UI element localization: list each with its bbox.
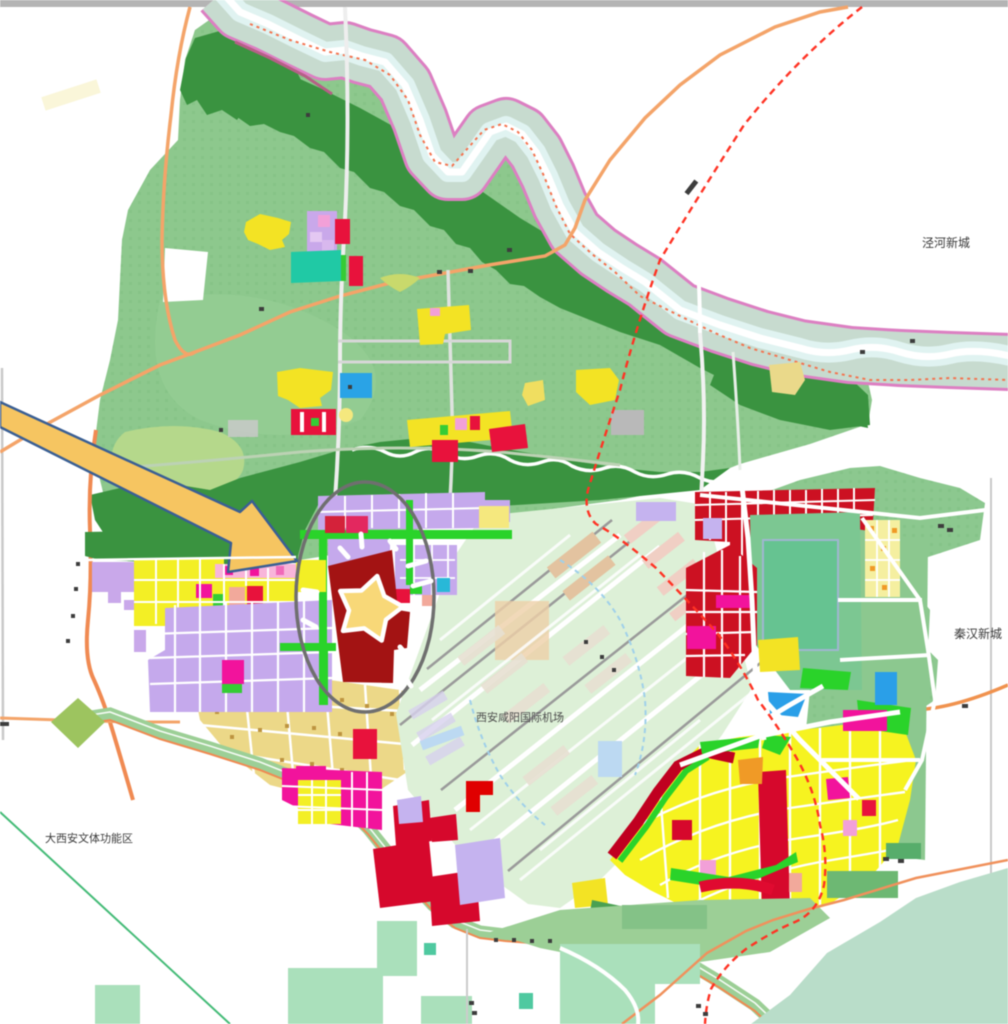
svg-text:西安咸阳国际机场: 西安咸阳国际机场 <box>476 710 564 724</box>
svg-text:大西安文体功能区: 大西安文体功能区 <box>45 831 133 845</box>
svg-text:秦汉新城: 秦汉新城 <box>954 626 1002 641</box>
svg-text:泾河新城: 泾河新城 <box>922 235 970 250</box>
